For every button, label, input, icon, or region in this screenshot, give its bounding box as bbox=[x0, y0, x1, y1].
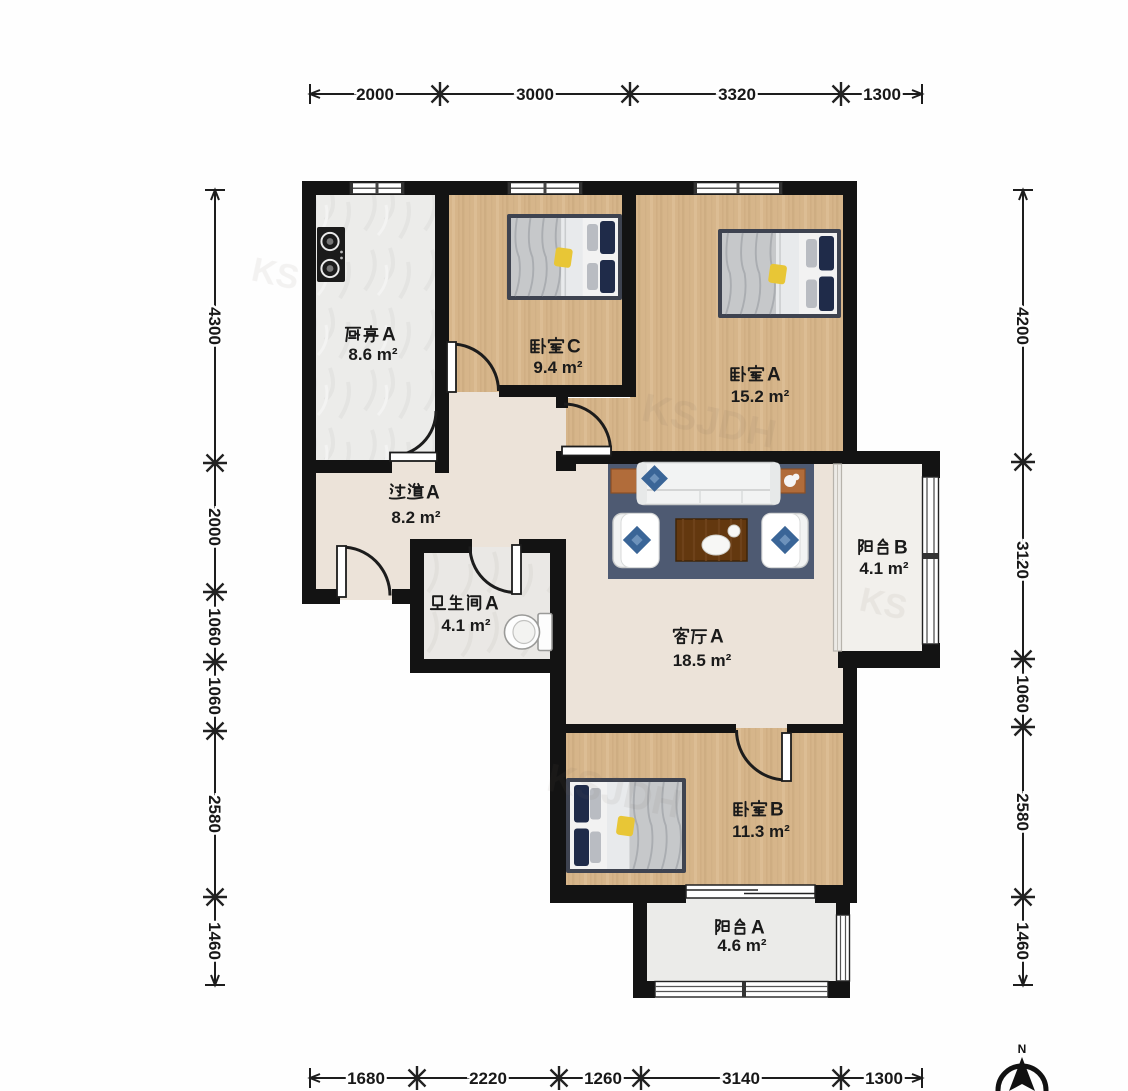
svg-text:3120: 3120 bbox=[1013, 541, 1032, 579]
svg-text:1060: 1060 bbox=[1013, 675, 1032, 713]
svg-text:3320: 3320 bbox=[718, 85, 756, 104]
svg-text:2580: 2580 bbox=[1013, 793, 1032, 831]
svg-text:1260: 1260 bbox=[584, 1069, 622, 1088]
svg-text:1060: 1060 bbox=[205, 608, 224, 646]
svg-text:A: A bbox=[485, 594, 499, 615]
svg-text:B: B bbox=[894, 538, 908, 559]
svg-text:2000: 2000 bbox=[356, 85, 394, 104]
svg-text:11.3 m²: 11.3 m² bbox=[732, 822, 790, 841]
svg-text:A: A bbox=[426, 483, 440, 504]
svg-text:N: N bbox=[1018, 1042, 1027, 1056]
svg-text:18.5 m²: 18.5 m² bbox=[673, 651, 732, 670]
svg-text:2580: 2580 bbox=[205, 795, 224, 833]
svg-text:3140: 3140 bbox=[722, 1069, 760, 1088]
svg-text:1300: 1300 bbox=[863, 85, 901, 104]
svg-text:15.2 m²: 15.2 m² bbox=[731, 387, 790, 406]
svg-text:2220: 2220 bbox=[469, 1069, 507, 1088]
svg-text:A: A bbox=[710, 627, 724, 648]
svg-text:4.1 m²: 4.1 m² bbox=[441, 616, 490, 635]
svg-text:C: C bbox=[567, 337, 581, 358]
svg-text:2000: 2000 bbox=[205, 508, 224, 546]
svg-text:8.6 m²: 8.6 m² bbox=[348, 345, 397, 364]
svg-text:1460: 1460 bbox=[205, 922, 224, 960]
svg-text:B: B bbox=[770, 800, 784, 821]
svg-text:A: A bbox=[767, 365, 781, 386]
svg-text:8.2 m²: 8.2 m² bbox=[391, 508, 440, 527]
svg-text:3000: 3000 bbox=[516, 85, 554, 104]
svg-text:4.6 m²: 4.6 m² bbox=[717, 936, 766, 955]
svg-text:1300: 1300 bbox=[865, 1069, 903, 1088]
svg-text:4300: 4300 bbox=[205, 307, 224, 345]
svg-text:1680: 1680 bbox=[347, 1069, 385, 1088]
svg-text:1460: 1460 bbox=[1013, 922, 1032, 960]
svg-text:4.1 m²: 4.1 m² bbox=[859, 559, 908, 578]
svg-text:A: A bbox=[382, 325, 396, 346]
svg-text:4200: 4200 bbox=[1013, 307, 1032, 345]
svg-text:9.4 m²: 9.4 m² bbox=[533, 358, 582, 377]
svg-text:1060: 1060 bbox=[205, 677, 224, 715]
